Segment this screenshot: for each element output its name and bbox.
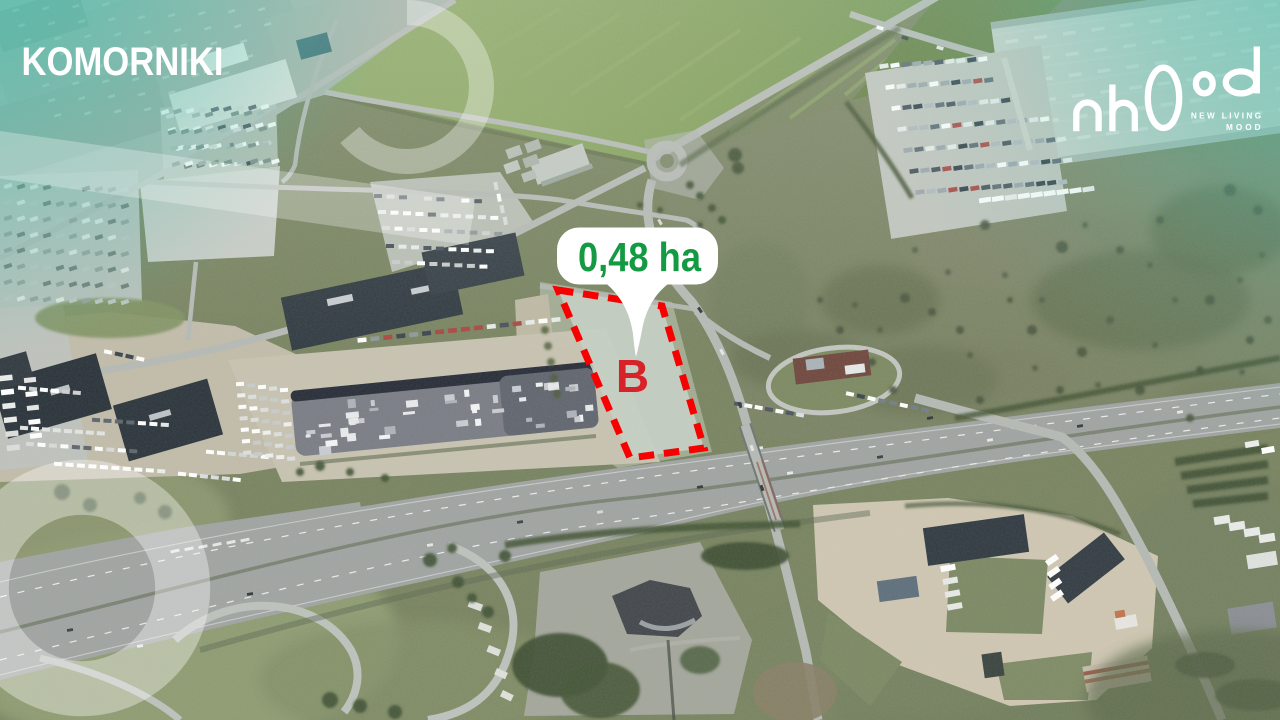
svg-text:NEW LIVING: NEW LIVING	[1191, 112, 1264, 121]
svg-text:KOMORNIKI: KOMORNIKI	[22, 40, 224, 84]
svg-text:MOOD: MOOD	[1226, 123, 1263, 132]
svg-text:0,48 ha: 0,48 ha	[578, 234, 702, 280]
svg-text:B: B	[616, 350, 649, 402]
